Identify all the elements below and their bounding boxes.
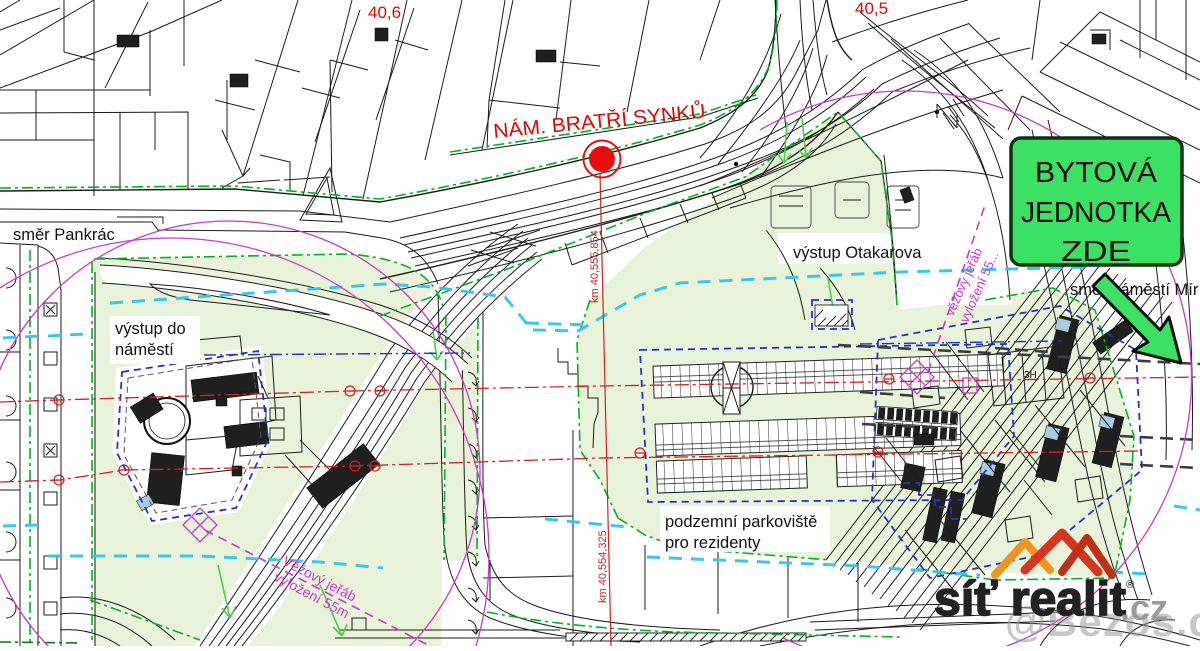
- svg-text:BYTOVÁ: BYTOVÁ: [1035, 156, 1158, 189]
- svg-text:.cz: .cz: [1120, 587, 1168, 628]
- svg-text:výstup Otakarova: výstup Otakarova: [793, 244, 922, 262]
- svg-text:40,6: 40,6: [368, 3, 401, 22]
- svg-text:výstup do: výstup do: [115, 320, 186, 338]
- svg-text:ZDE: ZDE: [1061, 236, 1131, 268]
- svg-text:síť realit: síť realit: [934, 573, 1126, 626]
- svg-text:km 40,554,325: km 40,554,325: [597, 530, 609, 603]
- svg-text:40,5: 40,5: [855, 0, 888, 18]
- svg-text:JEDNOTKA: JEDNOTKA: [1021, 197, 1172, 229]
- svg-text:pro rezidenty: pro rezidenty: [665, 534, 761, 552]
- svg-text:km 40,555,854: km 40,555,854: [589, 230, 601, 303]
- svg-text:směr Pankrác: směr Pankrác: [13, 226, 115, 244]
- svg-text:podzemní parkoviště: podzemní parkoviště: [665, 513, 817, 531]
- svg-text:náměstí: náměstí: [115, 341, 174, 359]
- svg-text:směr náměstí Mír: směr náměstí Mír: [1070, 281, 1199, 299]
